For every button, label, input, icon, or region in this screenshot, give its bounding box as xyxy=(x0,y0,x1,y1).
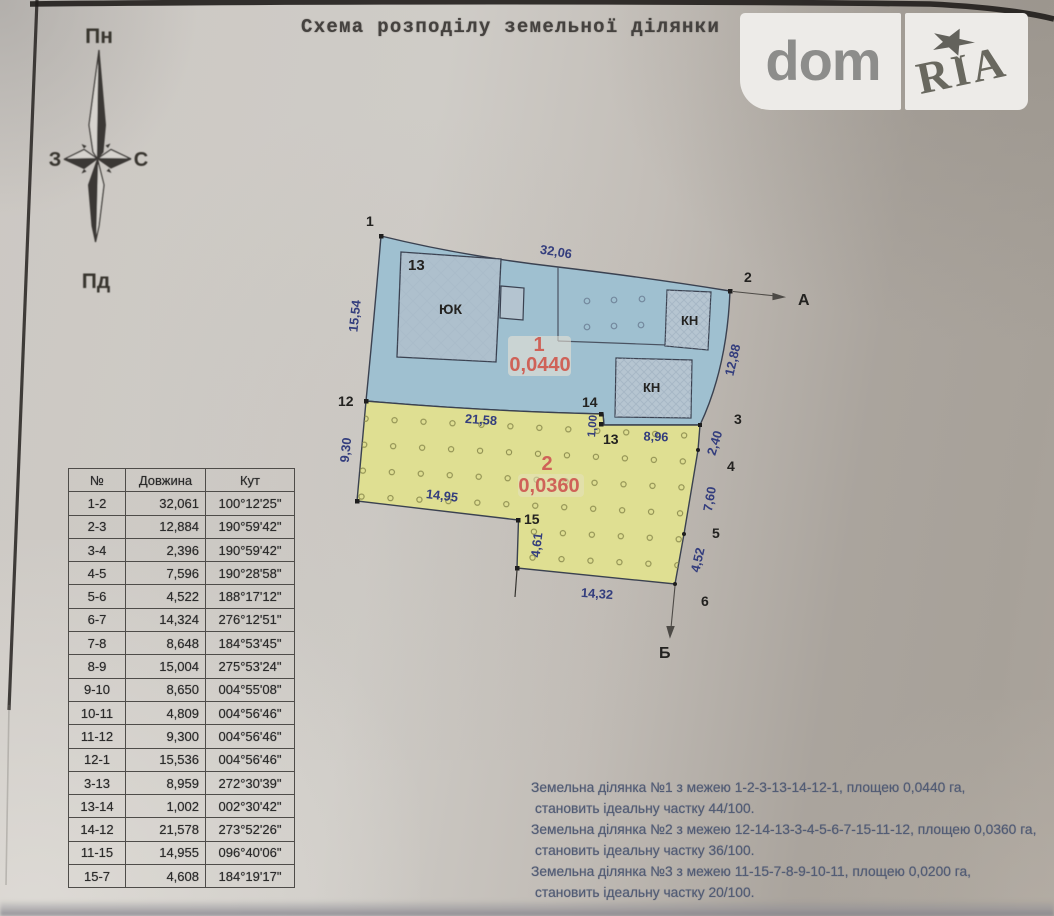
svg-text:12: 12 xyxy=(338,393,354,409)
svg-text:А: А xyxy=(798,292,810,309)
svg-text:3: 3 xyxy=(734,411,742,427)
svg-text:4: 4 xyxy=(727,458,735,474)
svg-text:2: 2 xyxy=(541,453,552,475)
svg-text:0,0360: 0,0360 xyxy=(518,475,579,497)
svg-text:5: 5 xyxy=(712,525,720,541)
svg-text:7,60: 7,60 xyxy=(700,485,719,512)
svg-text:21,58: 21,58 xyxy=(465,411,498,428)
svg-text:12,88: 12,88 xyxy=(722,343,744,378)
svg-text:4,52: 4,52 xyxy=(687,546,707,574)
svg-text:9,30: 9,30 xyxy=(337,437,355,463)
svg-text:1: 1 xyxy=(533,334,544,356)
svg-text:0,0440: 0,0440 xyxy=(509,354,570,376)
svg-text:КН: КН xyxy=(681,313,698,328)
svg-text:2: 2 xyxy=(744,269,752,285)
svg-text:14: 14 xyxy=(582,394,598,410)
svg-text:15: 15 xyxy=(524,511,540,527)
svg-text:Б: Б xyxy=(659,645,671,662)
svg-text:13: 13 xyxy=(603,431,619,447)
svg-text:14,32: 14,32 xyxy=(581,585,614,602)
svg-text:15,54: 15,54 xyxy=(345,298,363,332)
svg-text:6: 6 xyxy=(701,593,709,609)
svg-text:13: 13 xyxy=(408,257,425,274)
svg-text:ЮК: ЮК xyxy=(439,301,462,317)
svg-text:8,96: 8,96 xyxy=(643,429,668,445)
svg-text:32,06: 32,06 xyxy=(539,242,573,262)
svg-text:2,40: 2,40 xyxy=(704,429,726,457)
svg-text:4,61: 4,61 xyxy=(528,532,546,559)
svg-text:1,00: 1,00 xyxy=(586,414,600,437)
svg-text:КН: КН xyxy=(643,380,660,395)
svg-text:1: 1 xyxy=(366,213,374,229)
